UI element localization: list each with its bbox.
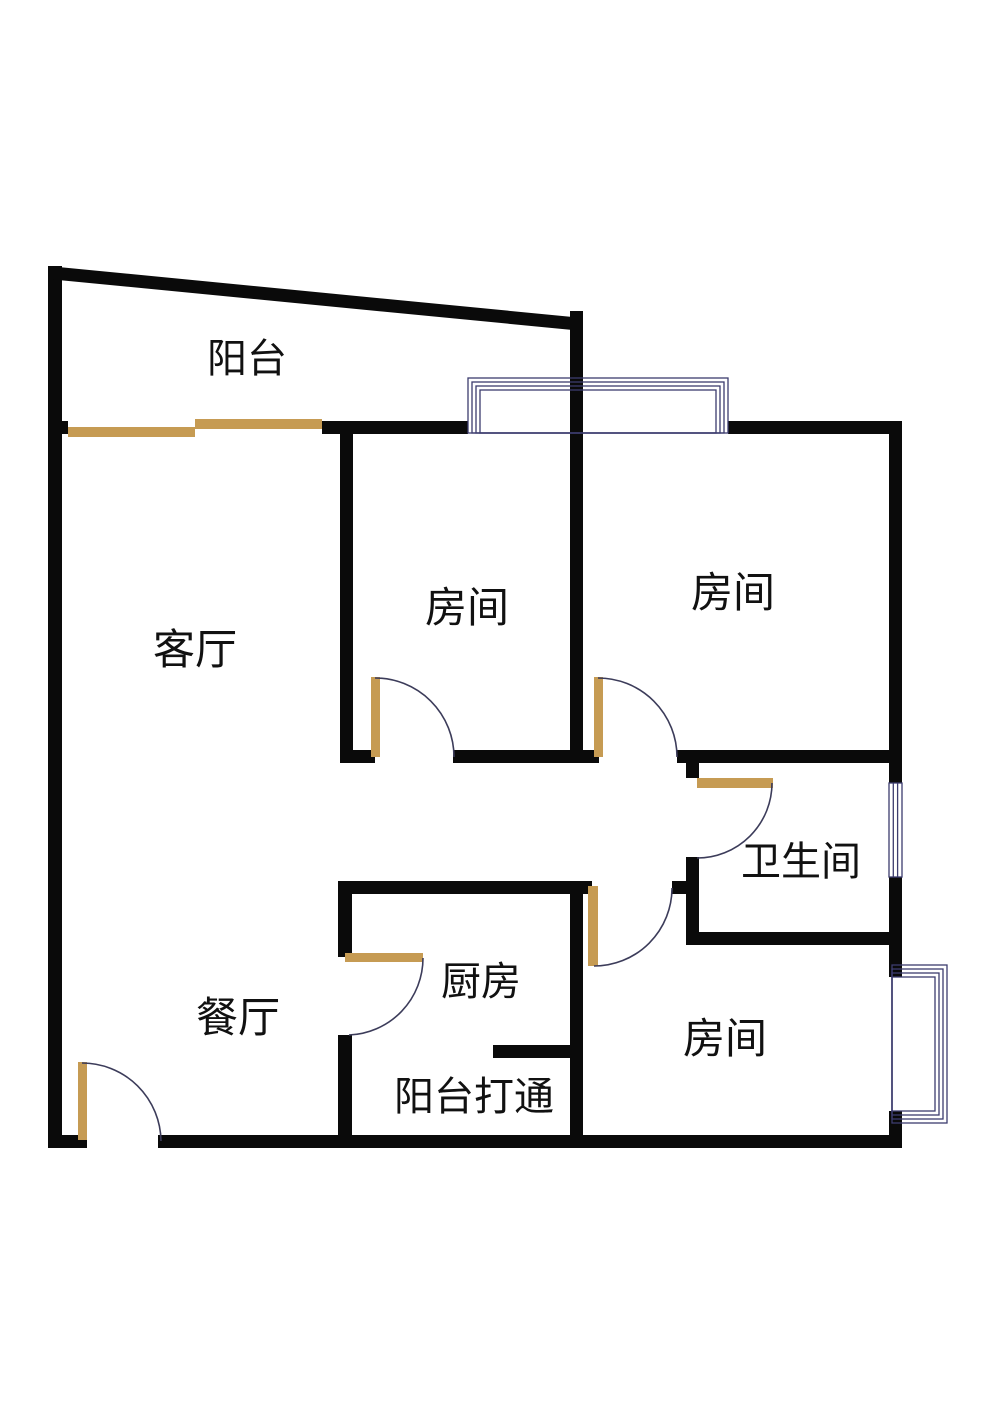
kitchen-door-arc	[349, 958, 423, 1035]
bathroom-window	[889, 783, 902, 877]
room-labels: 阳台 客厅 房间 房间 卫生间 餐厅 厨房 阳台打通 房间	[153, 336, 861, 1119]
label-bedroom-top-middle: 房间	[425, 586, 509, 632]
wall-exterior-right-upper	[889, 421, 902, 783]
doors	[78, 677, 773, 1141]
bathroom-door-panel	[697, 778, 773, 788]
label-bathroom: 卫生间	[741, 839, 861, 884]
label-dining-room: 餐厅	[196, 996, 280, 1042]
wall-exterior-left	[48, 266, 62, 1148]
bedroom-bottom-door-panel	[588, 886, 598, 966]
wall-bathroom-left-lower	[686, 857, 699, 945]
label-bedroom-top-right: 房间	[691, 571, 775, 617]
wall-balcony-top-slanted	[48, 266, 583, 331]
label-kitchen: 厨房	[441, 959, 521, 1004]
wall-bathroom-left-upper	[686, 763, 699, 778]
wall-hall-bottom-kitchen-top	[340, 881, 592, 894]
bedroom-right-door-arc	[598, 678, 677, 757]
label-balcony-top: 阳台	[207, 336, 287, 381]
entrance-door-arc	[82, 1063, 161, 1141]
label-living-room: 客厅	[153, 627, 237, 674]
wall-divider-bottom-vertical	[570, 881, 583, 1148]
bedroom-bottom-door-arc	[594, 888, 672, 966]
wall-top-right-of-window	[728, 421, 902, 434]
wall-kitchen-left-lower	[338, 1035, 352, 1148]
wall-hall-top-b	[453, 750, 599, 763]
wall-divider-top-vertical	[570, 311, 583, 763]
bedroom-middle-door-panel	[371, 677, 380, 757]
label-balcony-opened: 阳台打通	[394, 1074, 554, 1119]
wall-bedroom-middle-left	[340, 421, 353, 763]
floor-plan-drawing: 阳台 客厅 房间 房间 卫生间 餐厅 厨房 阳台打通 房间	[0, 0, 1000, 1413]
wall-hall-bottom-stub	[672, 881, 699, 894]
wall-bottom-main	[158, 1135, 902, 1148]
bedroom-right-door-panel	[594, 677, 603, 757]
wall-balcony-bottom-nub	[48, 421, 68, 434]
walls	[48, 266, 902, 1148]
label-bedroom-bottom-right: 房间	[683, 1017, 767, 1063]
bay-window-top	[468, 378, 728, 433]
kitchen-door-panel	[345, 953, 423, 962]
wall-exterior-right-middle	[889, 877, 902, 977]
balcony-window-strip-left	[68, 427, 195, 437]
bay-window-right	[892, 965, 947, 1123]
floor-plan-canvas: 阳台 客厅 房间 房间 卫生间 餐厅 厨房 阳台打通 房间	[0, 0, 1000, 1413]
bedroom-middle-door-arc	[375, 678, 454, 757]
wall-hall-top-a	[340, 750, 375, 763]
entrance-door-panel	[78, 1062, 87, 1140]
balcony-window-strip-right	[195, 419, 322, 429]
wall-kitchen-balcony-divider	[493, 1045, 570, 1058]
wall-kitchen-left-upper	[338, 881, 352, 957]
wall-bathroom-bottom	[686, 932, 902, 945]
wall-hall-top-c-bathroom-top	[677, 750, 902, 763]
